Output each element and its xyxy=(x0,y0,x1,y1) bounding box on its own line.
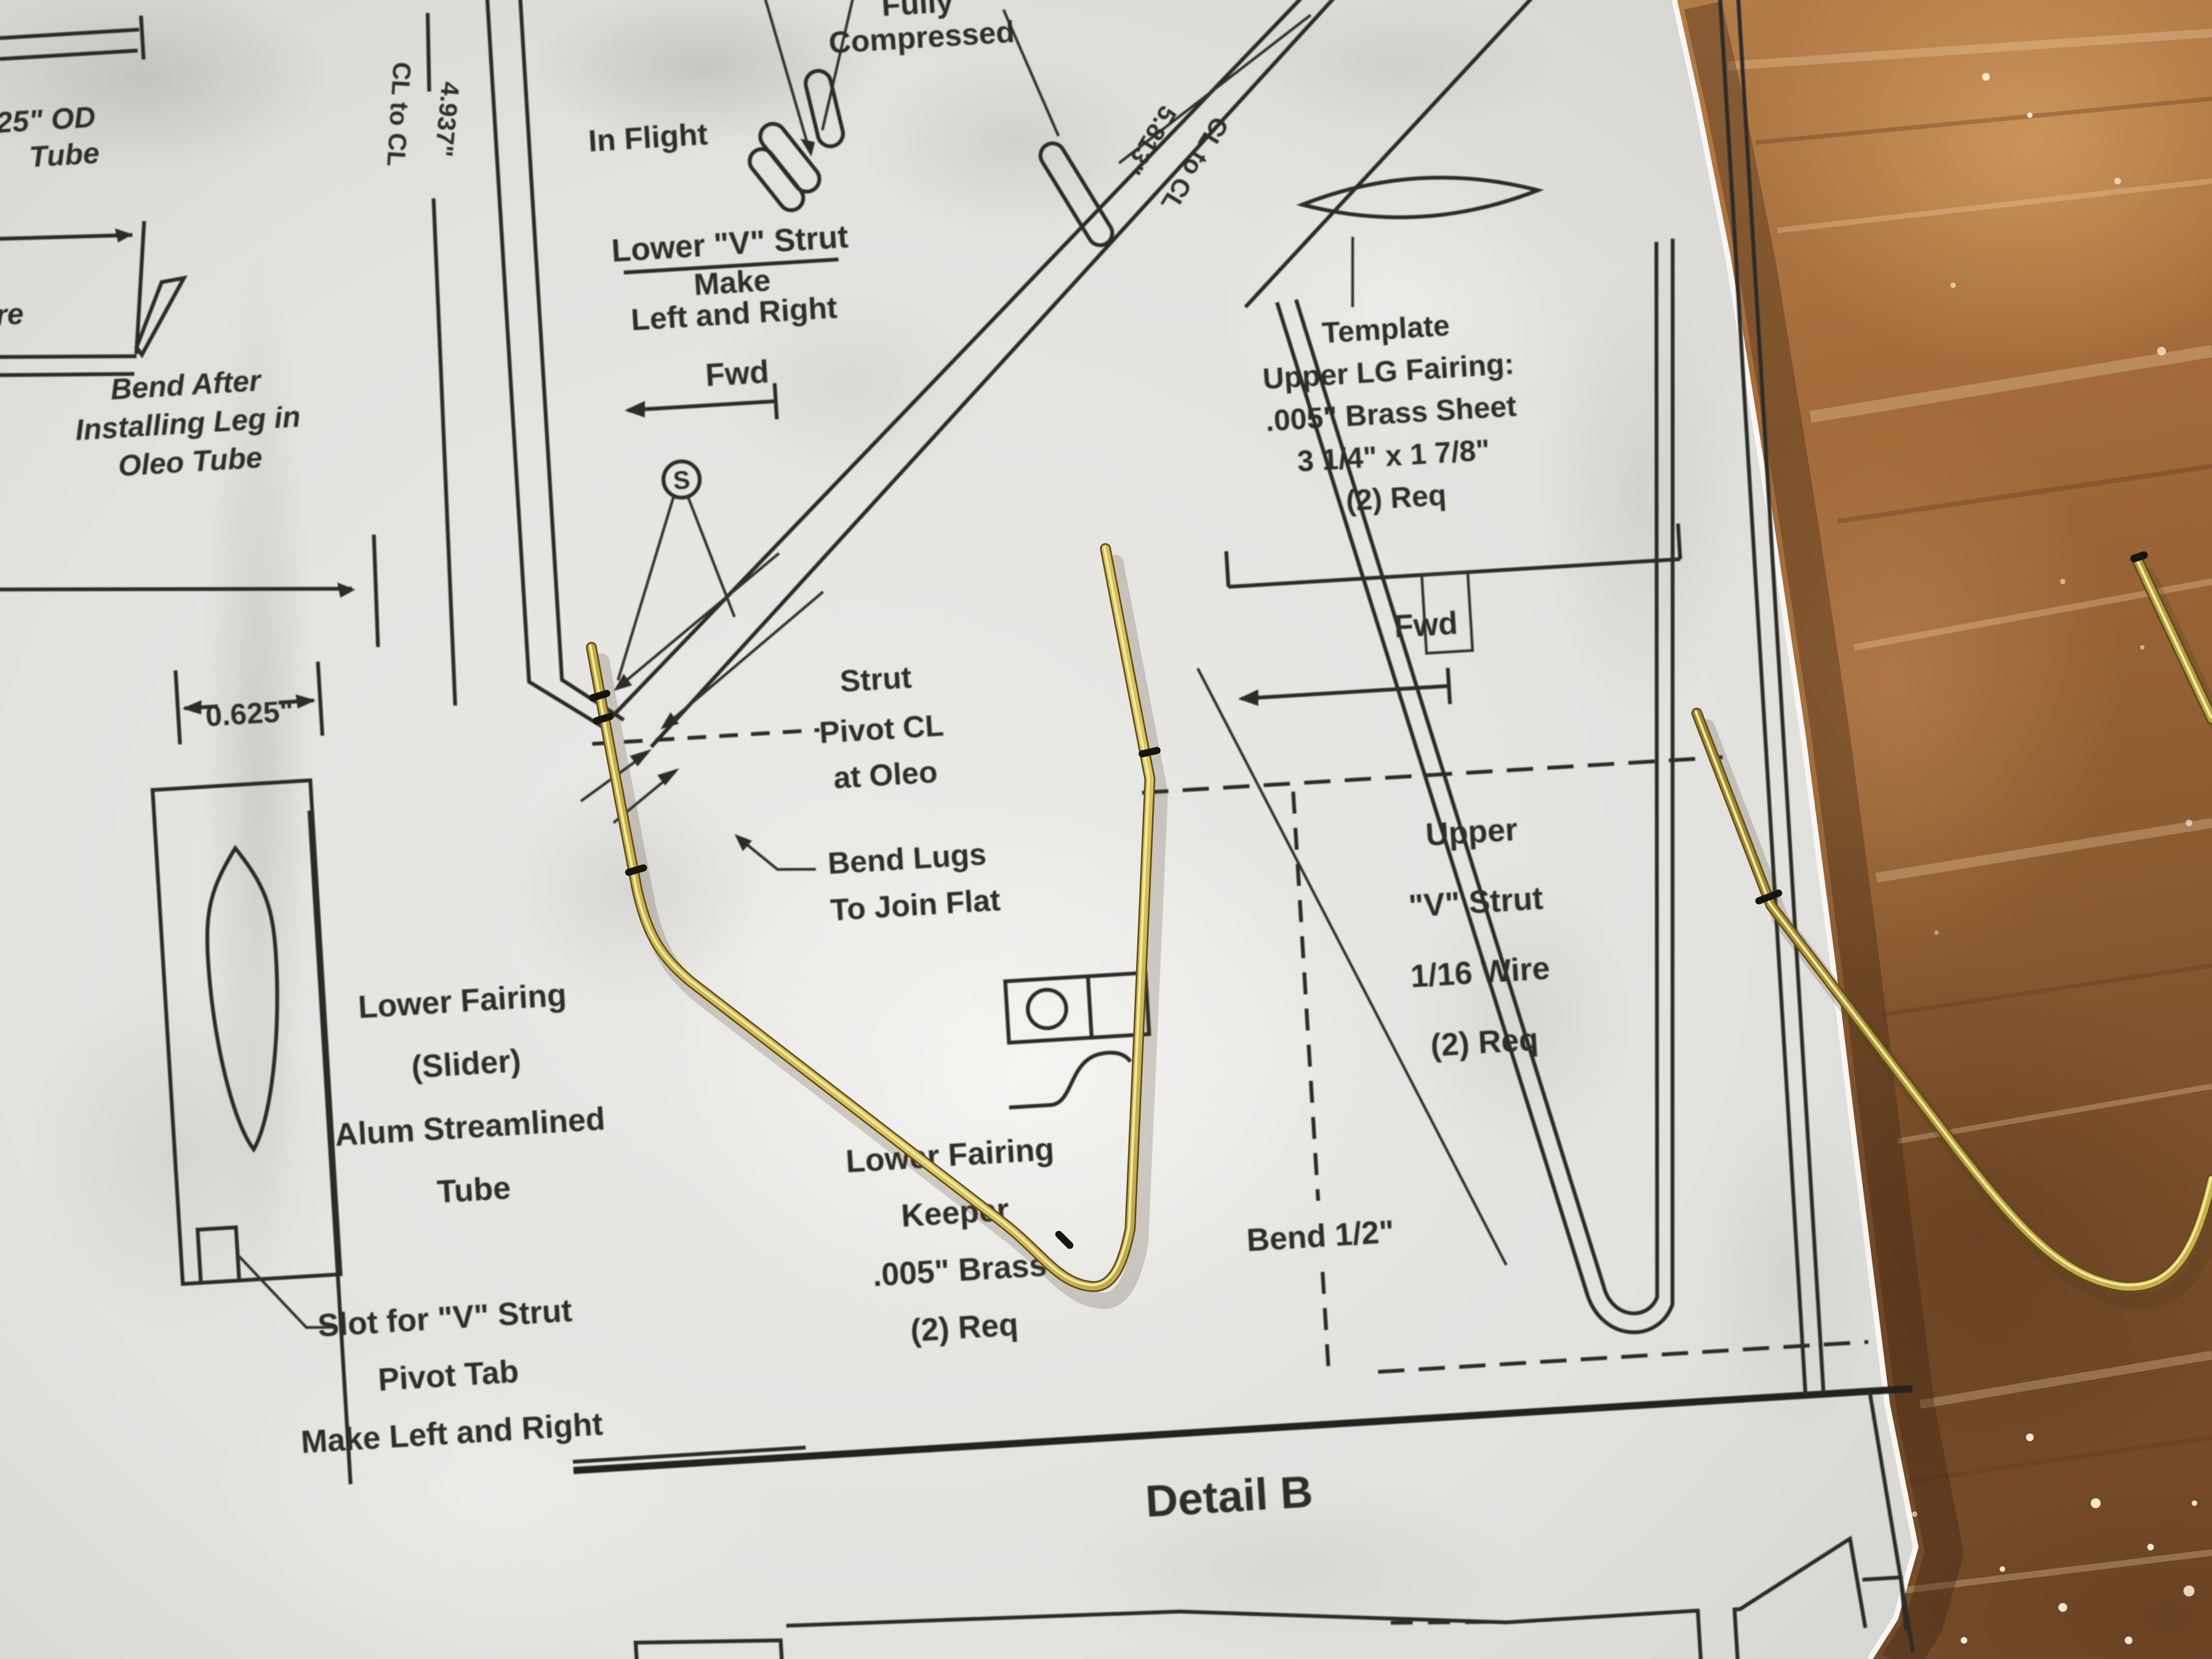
label-upper-4: (2) Req xyxy=(1430,1022,1539,1064)
label-keeper-4: (2) Req xyxy=(910,1307,1019,1349)
label-fwd-right: Fwd xyxy=(1393,605,1459,645)
label-dim-0625: 0.625" xyxy=(205,695,295,733)
label-upper-1: Upper xyxy=(1425,811,1519,853)
label-strut: Strut xyxy=(839,659,912,698)
label-wire: Wire xyxy=(0,297,25,334)
label-od-tube-1: 25" OD xyxy=(0,100,97,139)
label-in-flight: In Flight xyxy=(588,116,709,158)
label-slider-4: Tube xyxy=(436,1170,512,1210)
label-od-tube-2: Tube xyxy=(28,137,100,174)
label-slider-2: (Slider) xyxy=(410,1043,522,1085)
label-at-oleo: at Oleo xyxy=(832,754,938,795)
photo-plan-on-workbench: Fully Compressed In Flight Lower "V" Str… xyxy=(0,0,2212,1659)
label-s-marker: S xyxy=(673,465,691,495)
scene-svg: Fully Compressed In Flight Lower "V" Str… xyxy=(0,0,2212,1659)
plan-paper-sheet: Fully Compressed In Flight Lower "V" Str… xyxy=(0,0,1944,1659)
wire-cut-tip xyxy=(2134,555,2144,558)
label-template-5: (2) Req xyxy=(1345,478,1447,517)
label-fwd-left: Fwd xyxy=(704,354,770,393)
label-detail-b: Detail B xyxy=(1144,1466,1314,1526)
